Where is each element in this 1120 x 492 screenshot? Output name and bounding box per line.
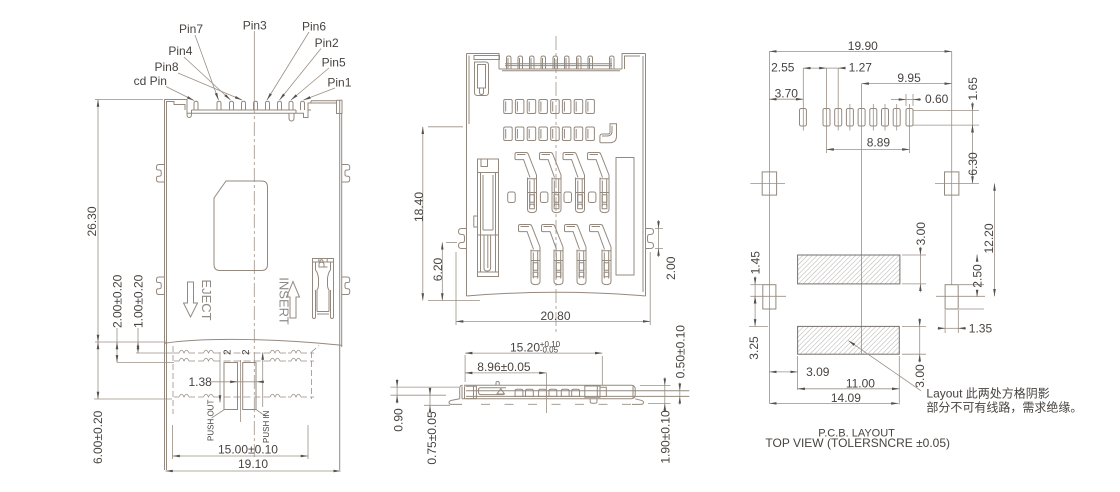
- svg-text:3.00: 3.00: [913, 364, 927, 388]
- svg-text:14.09: 14.09: [831, 391, 861, 405]
- svg-text:2: 2: [223, 349, 234, 355]
- svg-text:26.30: 26.30: [85, 206, 99, 236]
- svg-text:Pin6: Pin6: [302, 20, 326, 34]
- svg-text:部分不可有线路，需求绝缘。: 部分不可有线路，需求绝缘。: [926, 400, 1082, 415]
- svg-text:1.35: 1.35: [969, 322, 993, 336]
- svg-text:Pin7: Pin7: [179, 22, 203, 36]
- svg-text:Pin5: Pin5: [322, 56, 346, 70]
- svg-text:2.00±0.20: 2.00±0.20: [110, 274, 124, 328]
- svg-text:6.30: 6.30: [966, 152, 980, 176]
- svg-text:Pin2: Pin2: [315, 36, 339, 50]
- svg-text:6.00±0.20: 6.00±0.20: [91, 410, 105, 464]
- svg-text:2.55: 2.55: [771, 61, 795, 75]
- svg-text:Pin3: Pin3: [243, 19, 267, 33]
- svg-text:3.25: 3.25: [747, 336, 761, 360]
- svg-text:EJECT: EJECT: [199, 279, 214, 320]
- svg-text:3.70: 3.70: [775, 87, 799, 101]
- svg-text:18.40: 18.40: [412, 192, 426, 222]
- svg-text:3.09: 3.09: [806, 365, 830, 379]
- svg-text:0.60: 0.60: [925, 92, 949, 106]
- svg-text:11.00: 11.00: [846, 376, 875, 390]
- svg-text:0.50±0.10: 0.50±0.10: [673, 325, 687, 379]
- svg-text:12.20: 12.20: [982, 223, 996, 253]
- svg-text:2.50: 2.50: [971, 264, 985, 288]
- svg-text:19.10: 19.10: [238, 457, 268, 471]
- svg-text:3.00: 3.00: [914, 222, 928, 246]
- svg-text:TOP VIEW (TOLERSNCRE ±0.05): TOP VIEW (TOLERSNCRE ±0.05): [765, 436, 950, 450]
- svg-text:1.27: 1.27: [849, 61, 873, 75]
- svg-text:Pin1: Pin1: [327, 75, 351, 89]
- svg-text:cd Pin: cd Pin: [134, 74, 167, 88]
- svg-text:1.45: 1.45: [749, 251, 763, 275]
- svg-text:2.00: 2.00: [664, 256, 678, 280]
- svg-text:20.80: 20.80: [540, 309, 570, 323]
- svg-text:6.20: 6.20: [431, 257, 445, 281]
- svg-text:15.00±0.10: 15.00±0.10: [218, 443, 278, 457]
- svg-text:9.95: 9.95: [897, 71, 921, 85]
- svg-text:0.75±0.05: 0.75±0.05: [425, 411, 439, 465]
- svg-text:PUSH OUT: PUSH OUT: [207, 400, 216, 441]
- svg-text:Pin4: Pin4: [168, 44, 192, 58]
- svg-text:2: 2: [241, 349, 252, 355]
- svg-text:Layout 此两处方格阴影: Layout 此两处方格阴影: [926, 386, 1049, 401]
- svg-text:0.90: 0.90: [392, 408, 406, 432]
- svg-text:8.89: 8.89: [867, 136, 891, 150]
- svg-text:8.96±0.05: 8.96±0.05: [477, 360, 531, 374]
- svg-text:15.20: 15.20: [510, 341, 540, 355]
- svg-text:Pin8: Pin8: [155, 60, 179, 74]
- svg-text:19.90: 19.90: [848, 39, 878, 53]
- svg-text:PUSH IN: PUSH IN: [262, 410, 271, 443]
- svg-text:1.38: 1.38: [189, 375, 213, 389]
- svg-text:-0.05: -0.05: [540, 346, 559, 355]
- svg-text:INSERT: INSERT: [277, 277, 292, 324]
- svg-text:1.90±0.10: 1.90±0.10: [658, 410, 672, 464]
- svg-text:1.00±0.20: 1.00±0.20: [131, 274, 145, 328]
- svg-text:1.65: 1.65: [966, 77, 980, 101]
